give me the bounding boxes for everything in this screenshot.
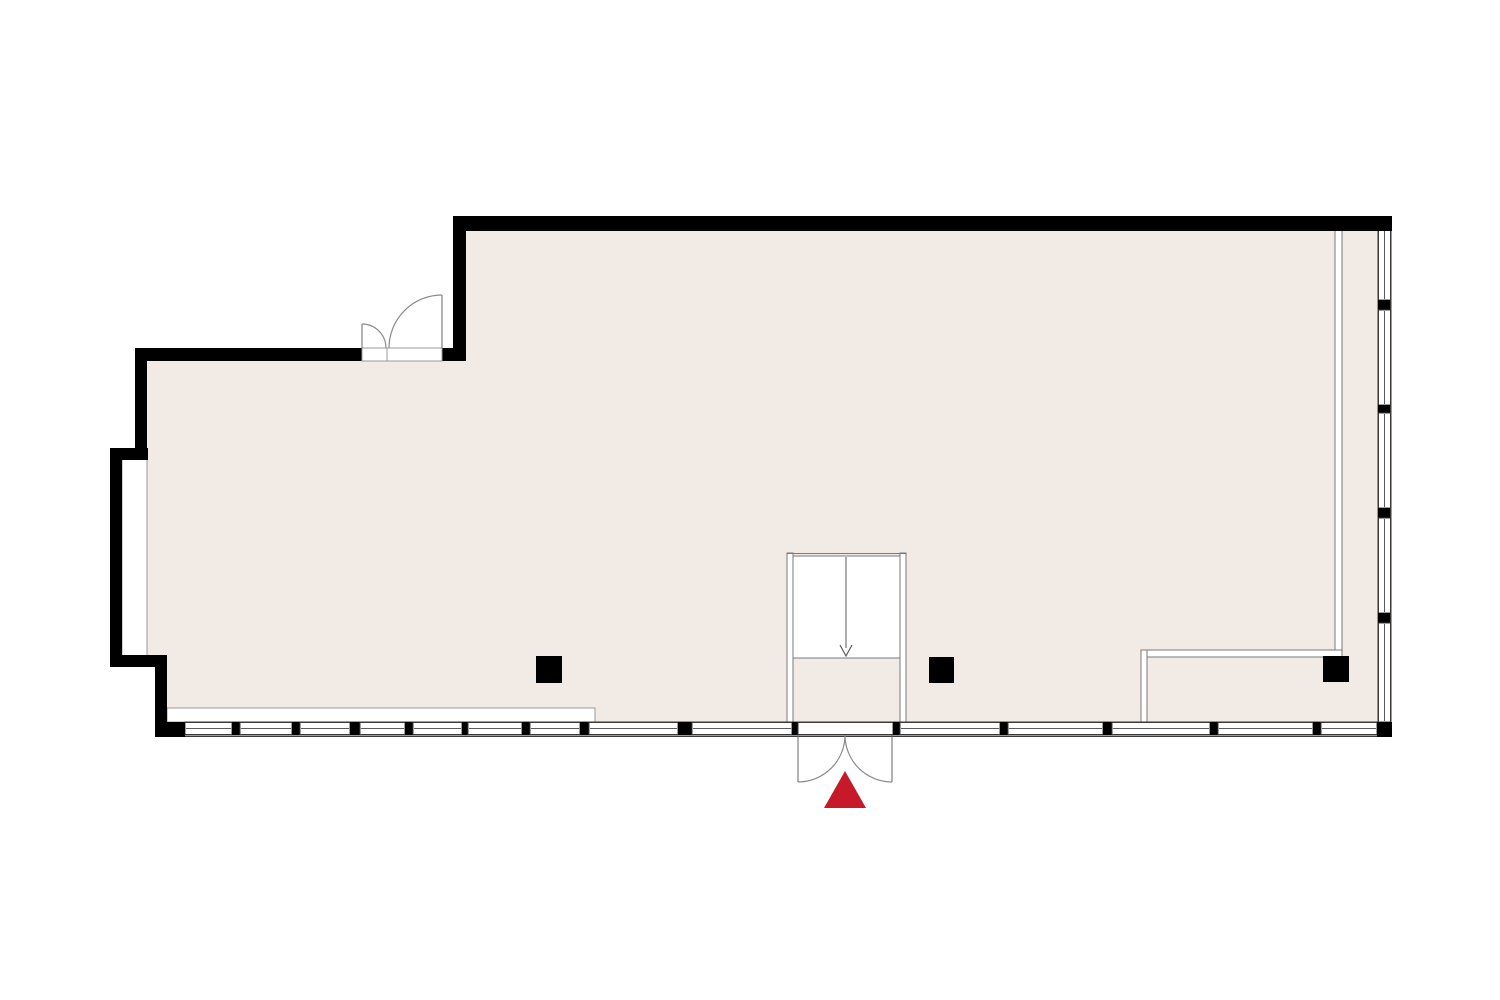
wall-bottom-left-corner — [155, 722, 185, 737]
window-mullion — [1103, 722, 1112, 735]
window-mullion — [405, 722, 413, 735]
wall-notch-vertical — [453, 216, 466, 361]
window-mullion — [462, 722, 468, 735]
window-mullion — [1210, 722, 1218, 735]
column-left — [536, 656, 562, 683]
window-mullion — [1378, 300, 1391, 310]
window-mullion — [1378, 508, 1391, 518]
window-mullion — [678, 722, 692, 735]
left-window-niche — [122, 458, 147, 658]
floor-plan-canvas — [0, 0, 1500, 1000]
vestibule-wall-right — [900, 553, 906, 722]
wall-bottom-right-corner — [1377, 722, 1392, 737]
wall-top — [453, 216, 1392, 231]
wall-outer-left-vertical — [110, 448, 122, 667]
window-mullion — [232, 722, 240, 735]
column-middle — [929, 657, 954, 683]
window-mullion — [1000, 722, 1008, 735]
floor-plan-drawing — [0, 0, 1500, 1000]
window-mullion — [1313, 722, 1321, 735]
window-mullion — [522, 722, 530, 735]
window-mullion — [350, 722, 360, 735]
partition-bottom-vertical — [1141, 650, 1147, 722]
window-mullion — [1378, 405, 1391, 413]
window-mullion — [792, 722, 798, 735]
interior-sill-strip — [167, 708, 595, 722]
double-door-top-sill — [362, 348, 442, 361]
wall-left-vertical — [135, 348, 147, 450]
wall-top-door-stub — [442, 348, 466, 361]
window-mullion — [292, 722, 300, 735]
column-right — [1323, 656, 1349, 682]
wall-upper-left-horizontal — [135, 348, 362, 361]
entrance-door-sill — [798, 723, 893, 735]
window-mullion — [893, 722, 900, 735]
window-mullion — [580, 722, 589, 735]
window-mullion — [1378, 613, 1391, 623]
partition-right-vertical — [1335, 230, 1342, 651]
partition-bottom-horizontal — [1141, 650, 1342, 657]
vestibule-wall-left — [787, 553, 793, 722]
